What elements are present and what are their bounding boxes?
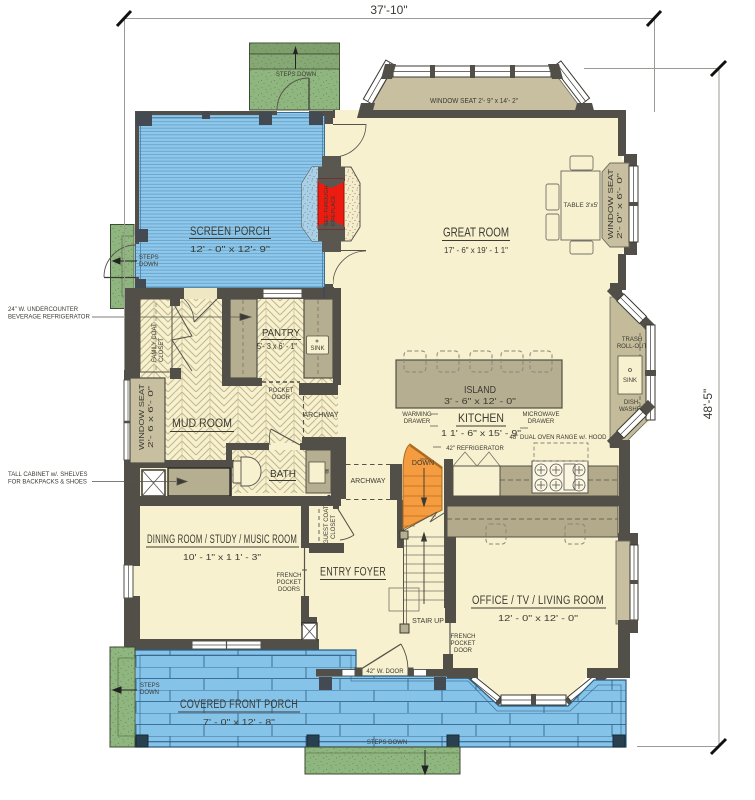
svg-text:42" REFRIGERATOR: 42" REFRIGERATOR	[446, 446, 504, 452]
svg-text:DRAWER: DRAWER	[528, 419, 555, 425]
svg-text:7' - 0" x 12' - 8": 7' - 0" x 12' - 8"	[203, 717, 275, 727]
svg-text:10' - 1" x 1 1' - 3": 10' - 1" x 1 1' - 3"	[183, 552, 261, 562]
svg-text:POCKET: POCKET	[269, 388, 294, 394]
svg-text:2'- 6 x 6'- 0": 2'- 6 x 6'- 0"	[148, 385, 155, 448]
svg-text:TRASH: TRASH	[622, 337, 642, 343]
svg-text:ARCHWAY: ARCHWAY	[351, 478, 386, 485]
svg-text:ISLAND: ISLAND	[464, 384, 496, 396]
svg-text:5'- 3 x 6' - 1": 5'- 3 x 6' - 1"	[257, 342, 297, 351]
svg-text:ARCHWAY: ARCHWAY	[304, 412, 339, 419]
svg-text:ROLL-OUT: ROLL-OUT	[617, 344, 648, 350]
svg-text:TABLE 3'x5': TABLE 3'x5'	[564, 202, 599, 209]
svg-text:3' - 6" x 12' - 0": 3' - 6" x 12' - 0"	[444, 396, 516, 406]
svg-text:WINDOW SEAT: WINDOW SEAT	[608, 168, 615, 239]
svg-text:24" W. UNDERCOUNTER: 24" W. UNDERCOUNTER	[8, 307, 79, 313]
svg-text:42" W. DOOR: 42" W. DOOR	[366, 669, 404, 675]
svg-text:SINK: SINK	[310, 346, 324, 352]
svg-text:CLOSET: CLOSET	[331, 515, 337, 539]
svg-text:DOOR: DOOR	[272, 395, 291, 401]
svg-text:SEE-THROUGH: SEE-THROUGH	[324, 185, 330, 226]
svg-text:TALL CABINET w/. SHELVES: TALL CABINET w/. SHELVES	[8, 472, 87, 478]
svg-text:WINDOW SEAT: WINDOW SEAT	[139, 383, 146, 450]
svg-text:17' - 6" x 19' - 1 1": 17' - 6" x 19' - 1 1"	[444, 245, 508, 255]
svg-text:12' - 0" x 12'- 9": 12' - 0" x 12'- 9"	[190, 244, 270, 254]
svg-text:MUD ROOM: MUD ROOM	[172, 416, 232, 430]
svg-text:PANTRY: PANTRY	[262, 327, 300, 339]
svg-text:STEPS: STEPS	[139, 255, 159, 261]
svg-text:SINK: SINK	[623, 378, 637, 384]
svg-text:STAIR UP: STAIR UP	[412, 618, 444, 625]
svg-text:GREAT ROOM: GREAT ROOM	[443, 226, 509, 240]
svg-text:DOORS: DOORS	[278, 587, 300, 593]
svg-text:DRAWER: DRAWER	[404, 419, 431, 425]
svg-text:BEVERAGE REFRIGERATOR: BEVERAGE REFRIGERATOR	[8, 315, 90, 321]
svg-text:DOOR: DOOR	[454, 648, 473, 654]
svg-text:48" DUAL OVEN RANGE w/. HOOD: 48" DUAL OVEN RANGE w/. HOOD	[510, 435, 608, 441]
svg-text:DOWN: DOWN	[412, 460, 434, 467]
svg-text:DINING ROOM / STUDY / MUSIC RO: DINING ROOM / STUDY / MUSIC ROOM	[147, 534, 297, 546]
svg-text:DOWN: DOWN	[139, 262, 158, 268]
svg-text:FOR BACKPACKS & SHOES: FOR BACKPACKS & SHOES	[8, 480, 87, 486]
svg-text:MICROWAVE: MICROWAVE	[523, 412, 560, 418]
svg-text:BATH: BATH	[270, 468, 296, 480]
svg-text:FAMILY COAT: FAMILY COAT	[152, 323, 158, 362]
svg-text:STEPS DOWN: STEPS DOWN	[276, 72, 316, 78]
svg-text:STEPS: STEPS	[140, 683, 160, 689]
svg-text:2'- 0" x 6'- 0": 2'- 0" x 6'- 0"	[617, 172, 624, 239]
svg-text:GUEST COAT: GUEST COAT	[324, 505, 330, 544]
svg-text:FIREPLACE: FIREPLACE	[331, 195, 337, 226]
svg-text:OFFICE / TV / LIVING ROOM: OFFICE / TV / LIVING ROOM	[472, 595, 604, 607]
svg-text:ENTRY FOYER: ENTRY FOYER	[320, 567, 386, 579]
svg-text:12' - 0" x 12' - 0": 12' - 0" x 12' - 0"	[498, 613, 578, 623]
svg-text:48'-5": 48'-5"	[701, 389, 715, 420]
svg-text:DISH-: DISH-	[624, 400, 640, 406]
svg-text:POCKET: POCKET	[451, 641, 476, 647]
svg-text:COVERED FRONT PORCH: COVERED FRONT PORCH	[180, 699, 298, 711]
svg-text:FRENCH: FRENCH	[451, 634, 476, 640]
svg-text:WARMING: WARMING	[402, 412, 432, 418]
svg-text:KITCHEN: KITCHEN	[458, 413, 504, 425]
svg-text:FRENCH: FRENCH	[277, 573, 302, 579]
svg-text:POCKET: POCKET	[277, 580, 302, 586]
svg-text:DOWN: DOWN	[140, 690, 159, 696]
svg-text:SCREEN PORCH: SCREEN PORCH	[190, 226, 270, 238]
svg-text:STEPS DOWN: STEPS DOWN	[367, 740, 407, 746]
svg-text:CLOSET: CLOSET	[159, 338, 165, 362]
svg-text:37'-10": 37'-10"	[370, 3, 407, 17]
svg-text:WINDOW SEAT 2'- 9" x 14'- 2": WINDOW SEAT 2'- 9" x 14'- 2"	[430, 98, 518, 105]
